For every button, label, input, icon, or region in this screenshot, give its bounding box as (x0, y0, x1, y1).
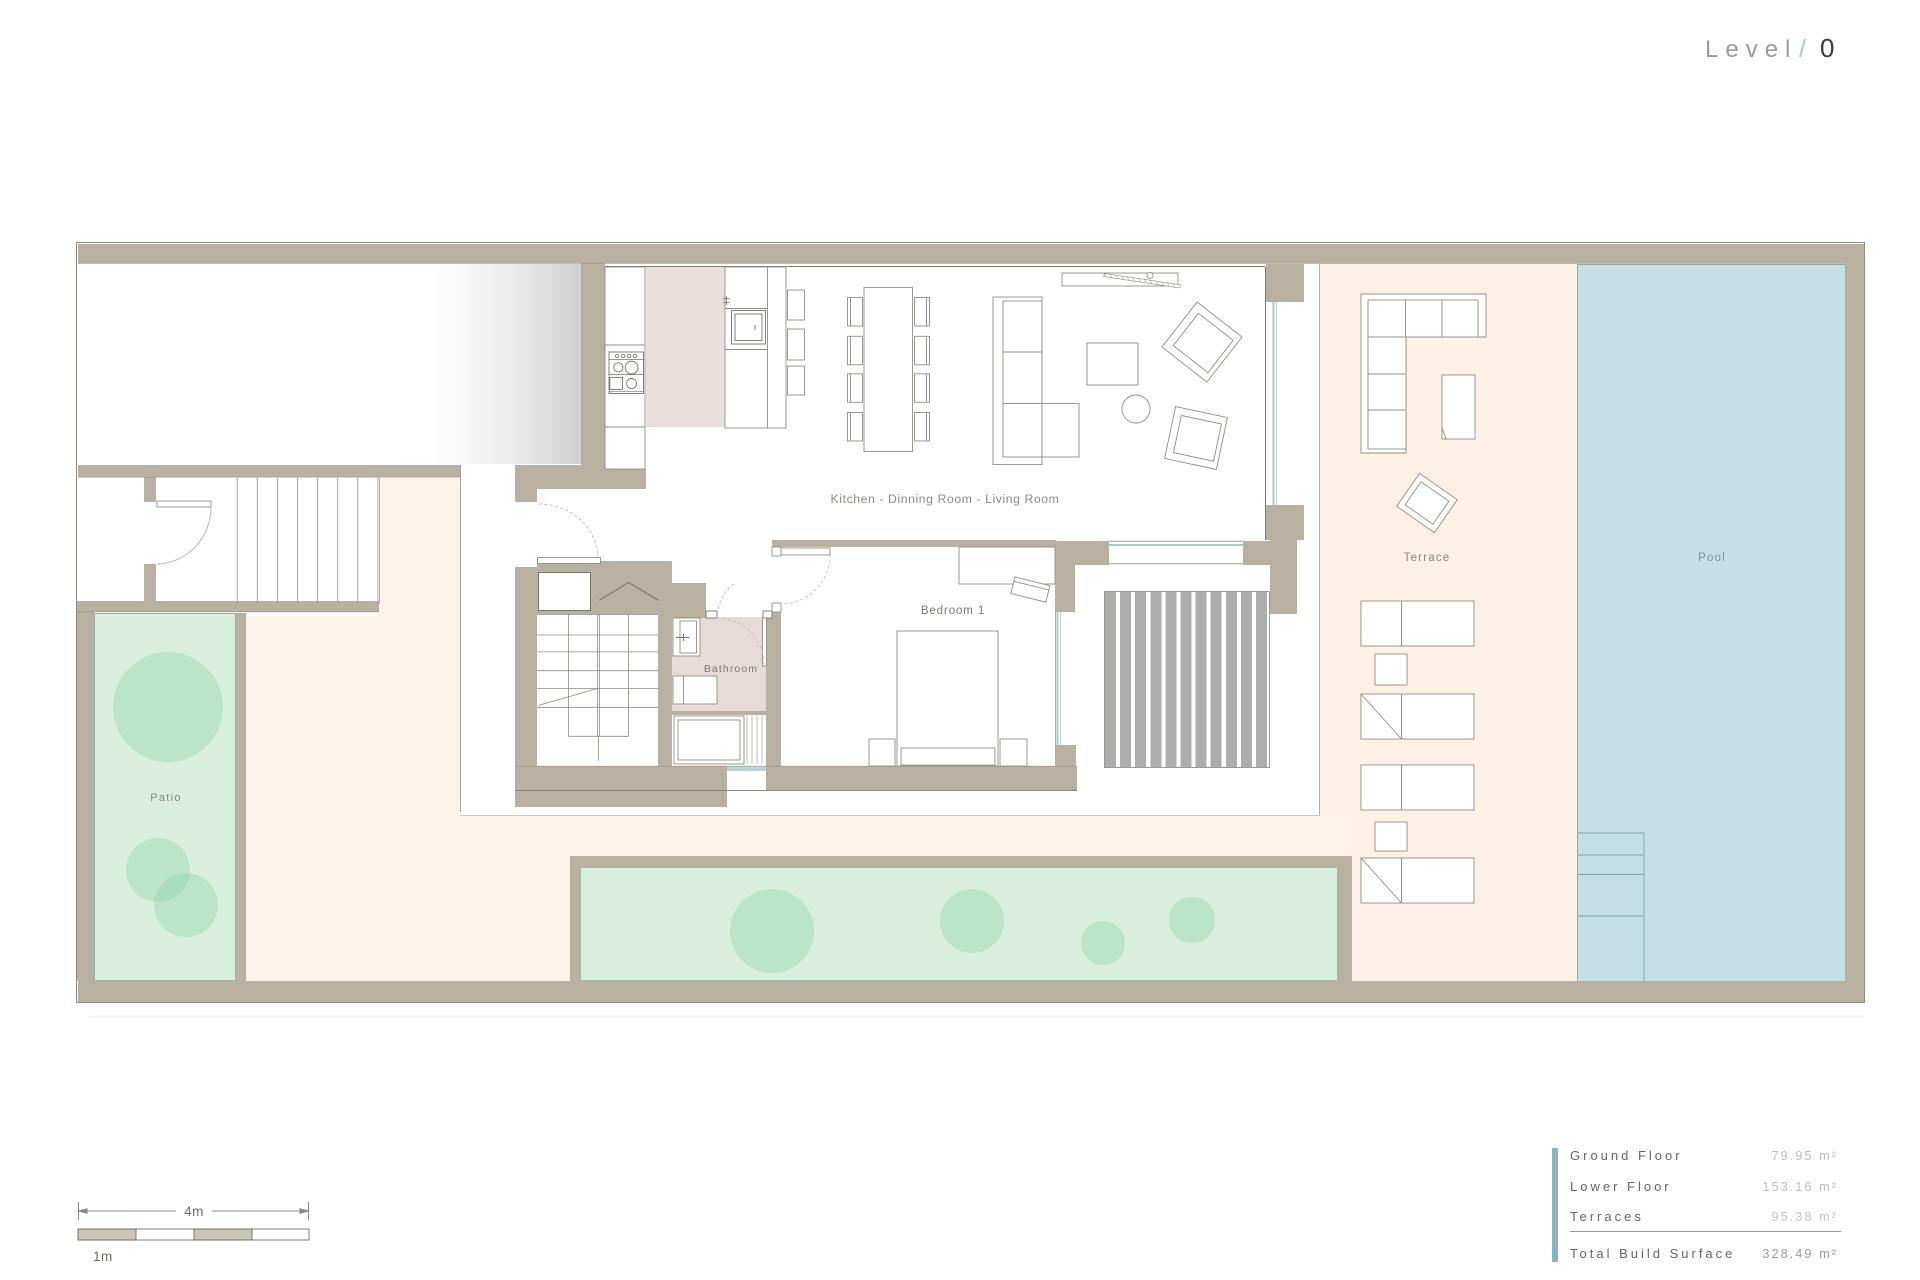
svg-text:Total Build Surface: Total Build Surface (1570, 1246, 1735, 1261)
svg-text:Ground Floor: Ground Floor (1570, 1148, 1683, 1163)
svg-text:Kitchen - Dinning Room - Livin: Kitchen - Dinning Room - Living Room (831, 492, 1060, 506)
svg-text:328.49 m²: 328.49 m² (1762, 1246, 1838, 1261)
svg-text:4m: 4m (184, 1204, 204, 1219)
svg-text:Pool: Pool (1698, 552, 1726, 564)
svg-text:Bathroom: Bathroom (704, 663, 758, 675)
svg-text:Patio: Patio (150, 792, 182, 804)
svg-text:Bedroom 1: Bedroom 1 (921, 605, 985, 617)
svg-text:1m: 1m (93, 1249, 113, 1264)
svg-text:Terrace: Terrace (1404, 552, 1451, 564)
svg-text:Lower Floor: Lower Floor (1570, 1179, 1672, 1194)
svg-text:Terraces: Terraces (1570, 1209, 1644, 1224)
svg-text:0: 0 (1820, 33, 1834, 63)
svg-text:79.95 m²: 79.95 m² (1771, 1148, 1838, 1163)
svg-text:153.16 m²: 153.16 m² (1762, 1179, 1838, 1194)
svg-text:Level: Level (1705, 36, 1797, 63)
svg-text:/: / (1799, 35, 1806, 63)
svg-text:95.38 m²: 95.38 m² (1771, 1209, 1838, 1224)
